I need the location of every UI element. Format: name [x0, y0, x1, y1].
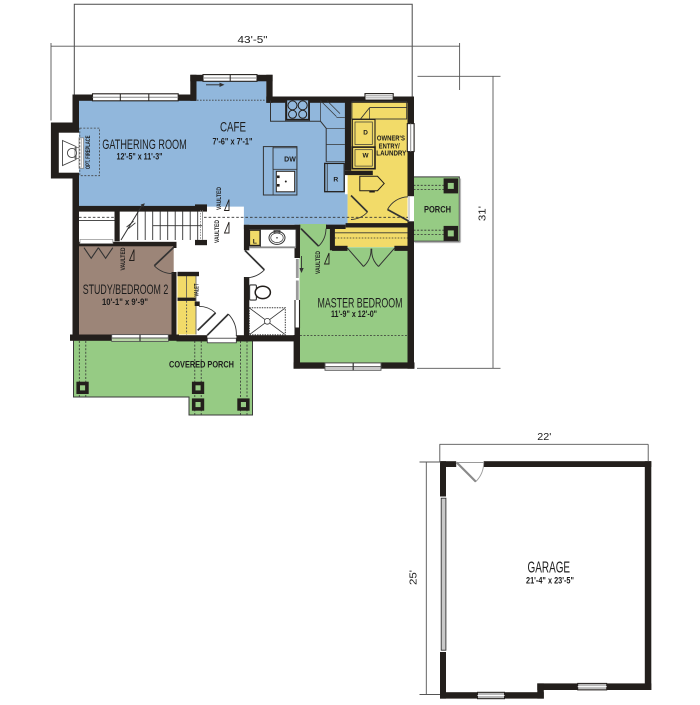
svg-text:12'-5" x 11'-3": 12'-5" x 11'-3"	[117, 151, 163, 162]
svg-text:22': 22'	[537, 432, 551, 443]
svg-text:10'-1" x 9'-9": 10'-1" x 9'-9"	[102, 297, 148, 308]
svg-text:OPT. FIREPLACE: OPT. FIREPLACE	[85, 136, 92, 170]
svg-text:GARAGE: GARAGE	[528, 560, 571, 577]
svg-text:VAULTED: VAULTED	[214, 220, 221, 243]
svg-text:PORCH: PORCH	[424, 205, 451, 215]
svg-text:VAULTED: VAULTED	[216, 187, 223, 210]
svg-text:21'-4" x 23'-5": 21'-4" x 23'-5"	[526, 575, 574, 586]
svg-text:LAUNDRY: LAUNDRY	[376, 150, 406, 157]
svg-text:D: D	[363, 129, 368, 136]
svg-text:VAULTED: VAULTED	[120, 247, 127, 270]
svg-text:STUDY/BEDROOM 2: STUDY/BEDROOM 2	[83, 281, 169, 297]
svg-text:COVERED PORCH: COVERED PORCH	[169, 359, 234, 370]
svg-text:VALET: VALET	[194, 283, 200, 296]
svg-text:25': 25'	[408, 570, 419, 585]
svg-text:VAULTED: VAULTED	[315, 251, 322, 274]
svg-text:7'-6" x 7'-1": 7'-6" x 7'-1"	[213, 136, 253, 147]
svg-text:31': 31'	[478, 206, 489, 221]
svg-text:W: W	[362, 152, 369, 159]
svg-text:DW: DW	[284, 157, 296, 164]
svg-text:43'-5": 43'-5"	[238, 35, 269, 46]
svg-text:R: R	[333, 176, 338, 183]
svg-text:GATHERING ROOM: GATHERING ROOM	[102, 136, 187, 152]
svg-text:L: L	[253, 239, 257, 246]
svg-text:CAFE: CAFE	[220, 119, 246, 135]
svg-text:11'-9" x 12'-0": 11'-9" x 12'-0"	[331, 309, 377, 320]
svg-text:OWNER'S: OWNER'S	[377, 136, 405, 143]
